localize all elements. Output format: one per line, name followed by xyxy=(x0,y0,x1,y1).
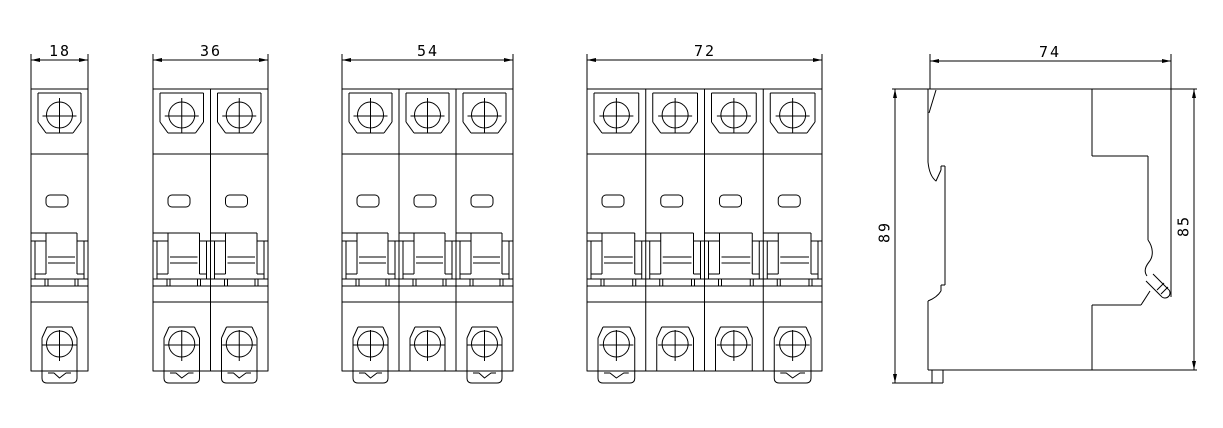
dim-label-width-1pole: 18 xyxy=(49,44,71,59)
drawing-canvas xyxy=(0,0,1223,428)
dim-label-width-2pole: 36 xyxy=(200,44,222,59)
dim-label-height-right-side: 85 xyxy=(1177,215,1192,237)
technical-drawing: 18 36 54 72 74 89 85 xyxy=(0,0,1223,428)
dim-label-depth-side: 74 xyxy=(1039,45,1061,60)
dim-label-width-4pole: 72 xyxy=(694,44,716,59)
dim-label-width-3pole: 54 xyxy=(417,44,439,59)
dim-label-height-left-side: 89 xyxy=(878,221,893,243)
